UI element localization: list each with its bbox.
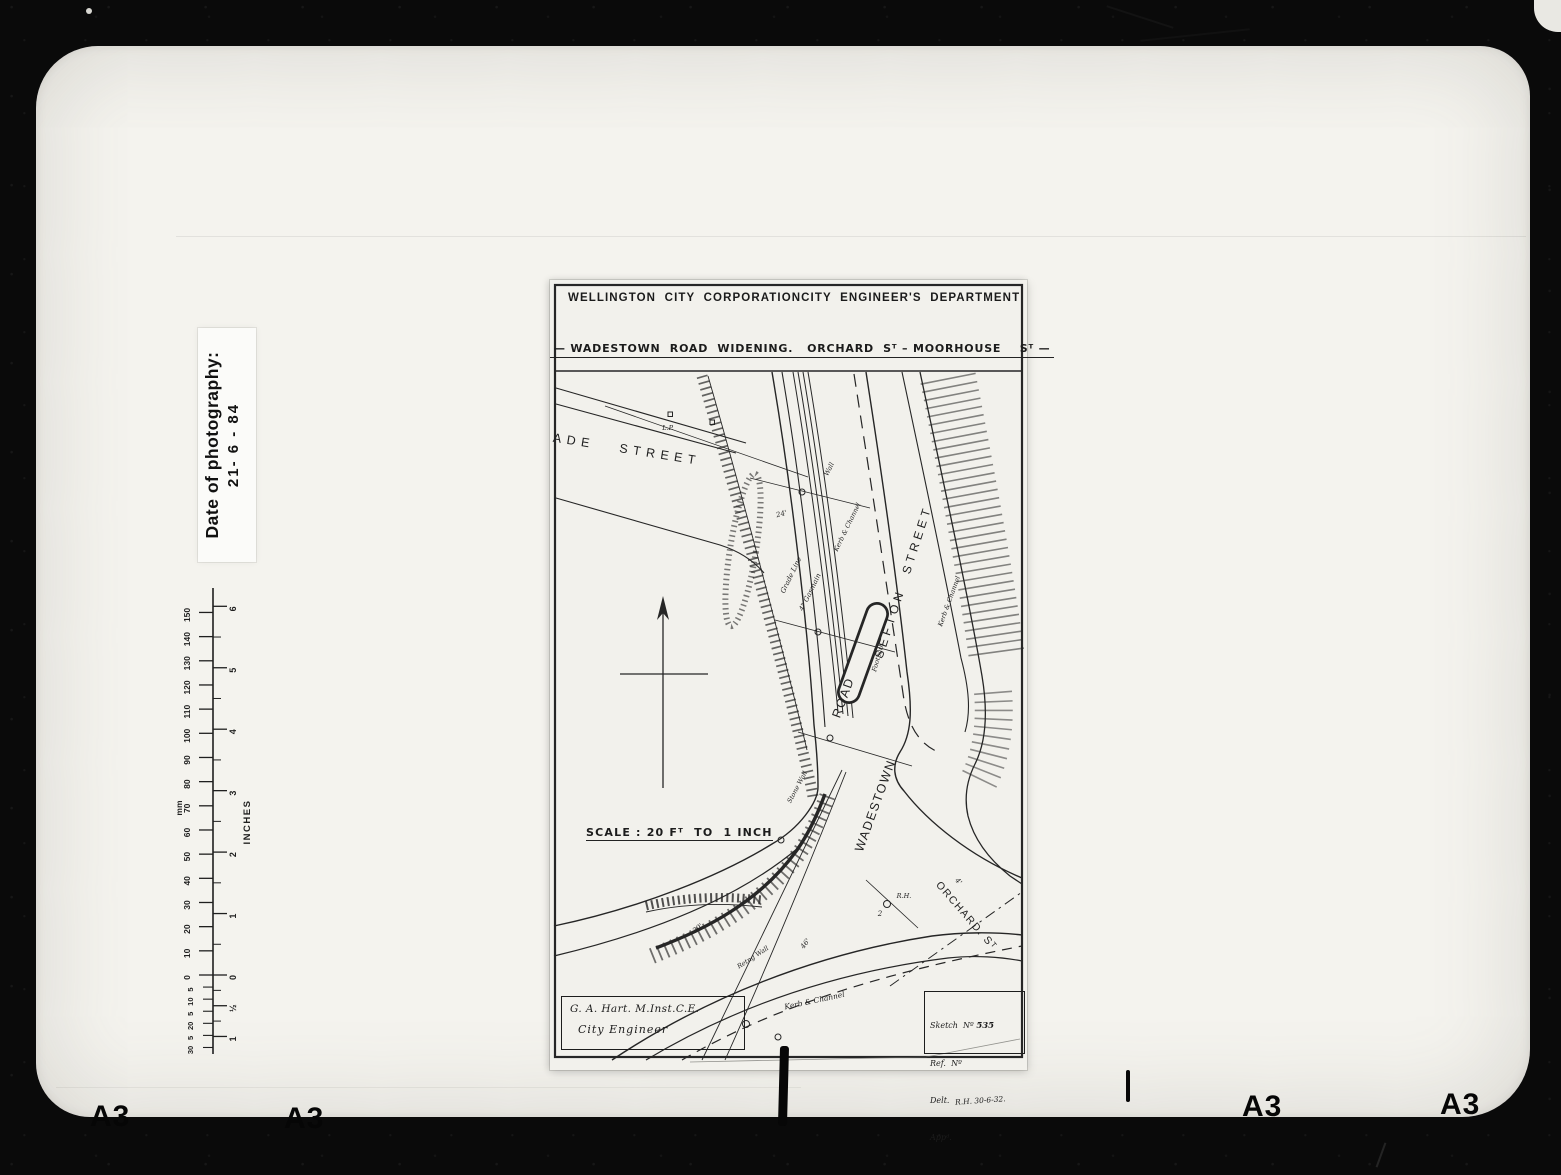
ruler-label: 40 — [182, 876, 192, 886]
ruler-label: 3 — [228, 791, 238, 796]
engineering-drawing: WADE STREETSEFTON STREETROADWADESTOWNORC… — [550, 280, 1027, 1070]
ruler-label: 1 — [228, 1036, 238, 1041]
ruler-label: 10 — [186, 997, 195, 1005]
sketch-number-label: Sketch Nº — [930, 1021, 976, 1030]
annotation-stone-wall: Stone Wall — [785, 770, 809, 805]
delt-label: Delt. — [930, 1096, 955, 1105]
mm-unit-label: mm — [174, 800, 184, 816]
film-scratch — [1106, 5, 1173, 29]
engineer-signature-box: G. A. Hart. M.Inst.C.E. City Engineer — [561, 996, 745, 1050]
ruler-label: 5 — [186, 1012, 195, 1016]
delt-row: Delt. R.H. 30-6-32. — [930, 1095, 1024, 1107]
annotation-kerb-channel-sefton: Kerb & Channel — [936, 575, 962, 629]
ruler-label: 4 — [228, 729, 238, 734]
point-label-2: 2 — [877, 910, 883, 918]
date-value: 21- 6 - 84 — [225, 328, 242, 562]
dimension-24ft: 24' — [774, 509, 788, 520]
ruler-label: 150 — [182, 608, 192, 622]
film-frame-mark: A3 — [1440, 1088, 1480, 1122]
street-label-orchard: ORCHARD. Sᵀ — [933, 879, 999, 953]
ruler-label: 1 — [228, 914, 238, 919]
ruler-label: 6 — [228, 606, 238, 611]
ruler-label: 10 — [182, 948, 192, 958]
scratch-line — [56, 1087, 801, 1088]
drawing-dept-title: CITY ENGINEER'S DEPARTMENT — [801, 292, 1020, 304]
film-frame-mark: A3 — [284, 1102, 324, 1136]
drawing-subtitle-row: — WADESTOWN ROAD WIDENING. ORCHARD Sᵀ – … — [550, 339, 1027, 358]
date-of-photography-label: Date of photography: 21- 6 - 84 — [198, 328, 256, 562]
ruler-label: 80 — [182, 779, 192, 789]
film-frame-mark: A3 — [90, 1100, 130, 1134]
engineer-name: G. A. Hart. M.Inst.C.E. — [570, 1003, 744, 1015]
annotation-retaining-wall: Retng Wall — [735, 944, 770, 971]
sketch-number-value: 535 — [976, 1021, 994, 1031]
ruler-label: 20 — [182, 924, 192, 934]
ruler-label: 50 — [182, 852, 192, 862]
ruler-label: 60 — [182, 827, 192, 837]
plan-map: WADE STREETSEFTON STREETROADWADESTOWNORC… — [550, 280, 1027, 1070]
approved-row: Appᵈ. — [930, 1132, 1024, 1144]
dimension-46ft: 46' — [798, 937, 812, 951]
photo-page: Date of photography: 21- 6 - 84 15014013… — [36, 46, 1530, 1117]
delt-value: R.H. 30-6-32. — [954, 1093, 1005, 1108]
ruler-label: 30 — [186, 1046, 195, 1054]
ruler-label: 0 — [228, 975, 238, 980]
point-label-rh: R.H. — [896, 892, 912, 900]
ruler-label: 140 — [182, 632, 192, 646]
scale-note: SCALE : 20 Fᵀ TO 1 INCH — [586, 826, 773, 841]
film-frame-mark: A3 — [1242, 1090, 1282, 1124]
street-label-wadestown: WADESTOWN — [852, 758, 898, 854]
engineer-title: City Engineer — [578, 1023, 744, 1036]
map-annotations: WADE STREETSEFTON STREETROADWADESTOWNORC… — [550, 424, 999, 1012]
ruler-label: 5 — [186, 987, 195, 991]
annotation-wall: Wall — [823, 461, 836, 477]
film-scratch — [1376, 1142, 1387, 1167]
ruler-label: 120 — [182, 680, 192, 694]
ruler-label: 30 — [182, 900, 192, 910]
scale-ruler: 1501401301201101009080706050403020100510… — [172, 582, 260, 1060]
ruler-label: 90 — [182, 755, 192, 765]
annotation-kerb-channel-upper: Kerb & Channel — [832, 502, 863, 554]
date-label-text: Date of photography: — [202, 328, 223, 562]
dust-speck — [86, 8, 92, 14]
ruler-marks: 1501401301201101009080706050403020100510… — [174, 588, 253, 1054]
dimension-4ft: 4' — [953, 876, 964, 887]
ref-number-row: Ref. Nº — [930, 1058, 1024, 1070]
ruler-label: 5 — [228, 668, 238, 673]
ruler-label: 130 — [182, 656, 192, 670]
drawing-org-title: WELLINGTON CITY CORPORATION — [568, 292, 801, 304]
drawing-header: WELLINGTON CITY CORPORATION CITY ENGINEE… — [558, 292, 1019, 304]
film-scratch — [1140, 28, 1250, 41]
ruler-label: 5 — [186, 1036, 195, 1040]
scratch-line — [176, 236, 1526, 237]
drawing-frame — [555, 285, 1022, 1057]
ruler-label: 2 — [228, 852, 238, 857]
registration-mark — [1126, 1070, 1130, 1102]
ruler-label: 20 — [186, 1022, 195, 1030]
ruler-label: 0 — [182, 975, 192, 980]
street-label-wade: WADE STREET — [550, 428, 702, 468]
ruler-label: 110 — [182, 705, 192, 719]
film-edge-sliver — [1534, 0, 1561, 32]
ruler-label: ½ — [228, 1004, 238, 1012]
inches-unit-label: INCHES — [242, 800, 253, 845]
drawing-subtitle: — WADESTOWN ROAD WIDENING. ORCHARD Sᵀ – … — [550, 342, 1054, 358]
annotation-lp: L.P. — [661, 424, 674, 432]
ruler-label: 100 — [182, 728, 192, 742]
sketch-number-row: Sketch Nº 535 — [930, 1020, 1024, 1033]
sketch-number-box: Sketch Nº 535 Ref. Nº Delt. R.H. 30-6-32… — [924, 991, 1025, 1054]
film-background: { "photo": { "date_label": { "line1": "D… — [0, 0, 1561, 1175]
